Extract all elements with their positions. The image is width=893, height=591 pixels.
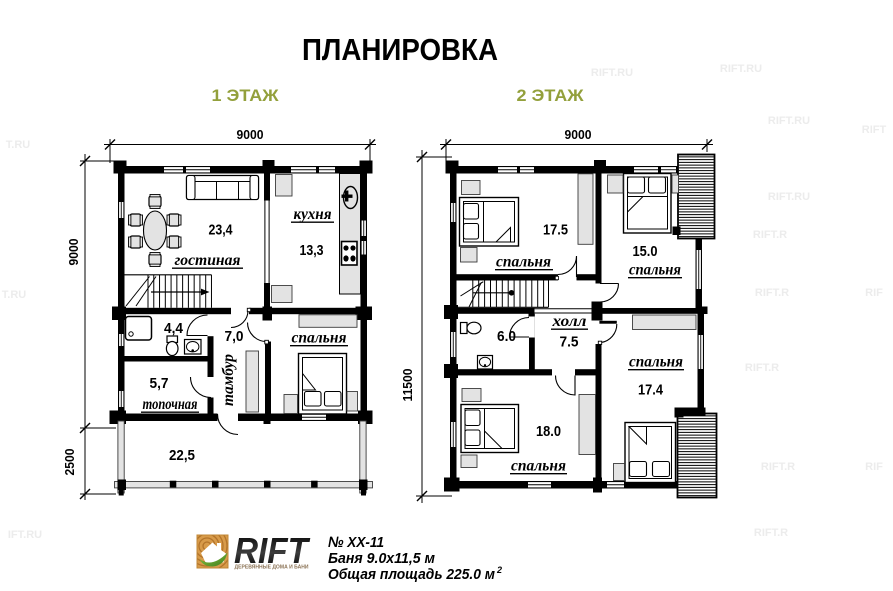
svg-text:RIF: RIF bbox=[865, 461, 883, 473]
svg-text:№ ХХ-11: № ХХ-11 bbox=[328, 534, 384, 551]
svg-text:спальня: спальня bbox=[496, 254, 551, 271]
svg-text:кухня: кухня bbox=[294, 206, 332, 223]
svg-text:RIFT.R: RIFT.R bbox=[754, 527, 788, 539]
svg-text:9000: 9000 bbox=[237, 127, 264, 142]
svg-text:топочная: топочная bbox=[143, 396, 198, 413]
svg-text:спальня: спальня bbox=[511, 458, 566, 475]
svg-text:холл: холл bbox=[551, 313, 586, 330]
svg-text:ПЛАНИРОВКА: ПЛАНИРОВКА bbox=[302, 32, 498, 67]
svg-text:7,0: 7,0 bbox=[225, 329, 244, 345]
svg-text:Баня 9.0х11,5 м: Баня 9.0х11,5 м bbox=[328, 550, 435, 567]
svg-text:тамбур: тамбур bbox=[220, 354, 237, 406]
svg-text:RIFT.R: RIFT.R bbox=[753, 229, 787, 241]
svg-text:4,4: 4,4 bbox=[164, 321, 183, 337]
svg-text:T.RU: T.RU bbox=[2, 289, 27, 301]
svg-text:2: 2 bbox=[496, 565, 502, 575]
svg-text:RIFT.RU: RIFT.RU bbox=[768, 115, 810, 127]
svg-text:17.4: 17.4 bbox=[638, 383, 663, 399]
svg-text:9000: 9000 bbox=[565, 127, 592, 142]
svg-text:RIFT: RIFT bbox=[862, 124, 887, 136]
svg-text:18.0: 18.0 bbox=[536, 424, 561, 440]
svg-text:спальня: спальня bbox=[629, 262, 681, 279]
svg-text:спальня: спальня bbox=[629, 354, 683, 371]
svg-text:15.0: 15.0 bbox=[633, 244, 658, 260]
svg-text:2 ЭТАЖ: 2 ЭТАЖ bbox=[517, 86, 585, 105]
svg-text:5,7: 5,7 bbox=[150, 376, 169, 392]
svg-text:RIFT.R: RIFT.R bbox=[745, 362, 779, 374]
svg-text:13,3: 13,3 bbox=[300, 243, 324, 259]
svg-text:RIFT.R: RIFT.R bbox=[755, 287, 789, 299]
svg-text:IFT.RU: IFT.RU bbox=[8, 529, 42, 541]
svg-text:RIFT.R: RIFT.R bbox=[761, 461, 795, 473]
svg-text:RIFT.RU: RIFT.RU bbox=[720, 63, 762, 75]
svg-text:9000: 9000 bbox=[66, 239, 81, 266]
svg-text:7.5: 7.5 bbox=[560, 335, 579, 351]
svg-text:ДЕРЕВЯННЫЕ ДОМА И БАНИ: ДЕРЕВЯННЫЕ ДОМА И БАНИ bbox=[235, 565, 309, 571]
svg-text:6.0: 6.0 bbox=[497, 329, 516, 345]
svg-text:гостиная: гостиная bbox=[175, 252, 241, 269]
svg-text:2500: 2500 bbox=[62, 449, 77, 476]
svg-text:T.RU: T.RU bbox=[6, 139, 31, 151]
svg-text:17.5: 17.5 bbox=[543, 223, 568, 239]
svg-text:23,4: 23,4 bbox=[209, 223, 233, 239]
svg-text:RIFT.RU: RIFT.RU bbox=[591, 67, 633, 79]
svg-text:1 ЭТАЖ: 1 ЭТАЖ bbox=[212, 86, 280, 105]
svg-text:22,5: 22,5 bbox=[169, 448, 195, 464]
svg-text:RIF: RIF bbox=[865, 287, 883, 299]
svg-text:спальня: спальня bbox=[292, 330, 347, 347]
svg-text:RIFT.RU: RIFT.RU bbox=[768, 191, 810, 203]
svg-text:11500: 11500 bbox=[400, 369, 415, 402]
svg-text:Общая площадь 225.0 м: Общая площадь 225.0 м bbox=[328, 566, 495, 583]
